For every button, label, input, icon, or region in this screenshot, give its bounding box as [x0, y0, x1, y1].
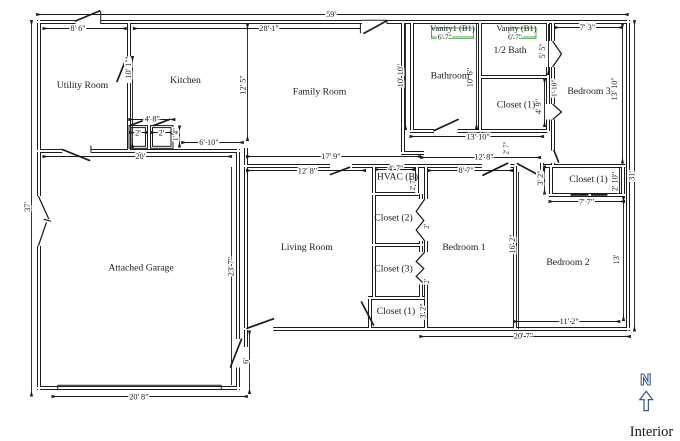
svg-text:13' 10": 13' 10" [610, 77, 619, 101]
svg-text:13' 10": 13' 10" [466, 133, 490, 142]
svg-text:Vanity (B1): Vanity (B1) [496, 23, 536, 33]
svg-text:Bedroom 1: Bedroom 1 [442, 242, 485, 253]
svg-text:12' 8": 12' 8" [298, 167, 317, 176]
svg-text:13': 13' [612, 254, 621, 264]
svg-text:Vanity1 (B1): Vanity1 (B1) [430, 23, 475, 33]
svg-text:10' 10": 10' 10" [396, 64, 405, 88]
svg-text:12' 8": 12' 8" [474, 153, 493, 162]
svg-text:20' 8": 20' 8" [129, 392, 148, 401]
svg-text:37': 37' [23, 202, 32, 212]
svg-text:3' 2": 3' 2" [419, 303, 428, 318]
svg-text:59': 59' [326, 10, 336, 19]
svg-text:2': 2' [423, 224, 431, 229]
svg-text:11' 2": 11' 2" [560, 317, 579, 326]
svg-text:3' 2": 3' 2" [536, 170, 545, 185]
svg-text:10' 1": 10' 1" [124, 59, 133, 78]
svg-text:7' 3": 7' 3" [580, 23, 595, 32]
svg-text:8' 7": 8' 7" [458, 166, 473, 175]
svg-text:HVAC (B): HVAC (B) [377, 172, 418, 183]
svg-text:Closet (1): Closet (1) [569, 174, 607, 185]
svg-text:Family Room: Family Room [293, 87, 347, 98]
svg-text:Interior: Interior [630, 424, 674, 440]
svg-text:5' 5": 5' 5" [538, 43, 547, 58]
svg-text:Closet (3): Closet (3) [374, 263, 412, 274]
svg-text:6': 6' [241, 358, 250, 364]
svg-text:Living Room: Living Room [281, 242, 333, 253]
svg-text:12' 5": 12' 5" [238, 75, 247, 94]
svg-text:2': 2' [135, 128, 141, 137]
svg-text:1' 10": 1' 10" [549, 79, 558, 97]
svg-text:23' 7": 23' 7" [227, 257, 236, 276]
svg-text:1' 4": 1' 4" [172, 128, 180, 141]
svg-text:Closet (1): Closet (1) [497, 99, 535, 110]
svg-text:Closet (1): Closet (1) [377, 306, 415, 317]
svg-text:6' 7": 6' 7" [508, 33, 522, 42]
svg-text:2' 10": 2' 10" [611, 172, 620, 191]
svg-text:6' 7": 6' 7" [438, 33, 452, 42]
svg-text:Attached Garage: Attached Garage [108, 263, 173, 274]
svg-text:28' 1": 28' 1" [259, 24, 278, 33]
svg-text:20' 7": 20' 7" [514, 332, 533, 341]
svg-text:8' 6": 8' 6" [70, 24, 85, 33]
svg-text:Utility Room: Utility Room [57, 80, 109, 91]
svg-text:20': 20' [135, 152, 145, 161]
svg-text:31': 31' [627, 171, 636, 181]
svg-text:7' 7": 7' 7" [579, 198, 594, 207]
svg-text:6' 10": 6' 10" [199, 138, 218, 147]
svg-text:4' 8": 4' 8" [145, 114, 160, 123]
svg-text:1/2 Bath: 1/2 Bath [493, 45, 526, 56]
svg-text:Kitchen: Kitchen [170, 75, 201, 86]
svg-text:Bedroom 2: Bedroom 2 [546, 257, 589, 268]
svg-text:2': 2' [159, 128, 165, 137]
svg-text:Bathroom: Bathroom [431, 71, 470, 82]
svg-text:Bedroom 3: Bedroom 3 [567, 86, 610, 97]
svg-text:2': 2' [423, 279, 431, 284]
svg-text:Closet (2): Closet (2) [374, 213, 412, 224]
svg-text:2' 7": 2' 7" [502, 141, 510, 154]
svg-text:4' 9": 4' 9" [534, 99, 543, 114]
svg-text:16' 2": 16' 2" [508, 234, 517, 253]
svg-text:17' 9": 17' 9" [321, 152, 340, 161]
